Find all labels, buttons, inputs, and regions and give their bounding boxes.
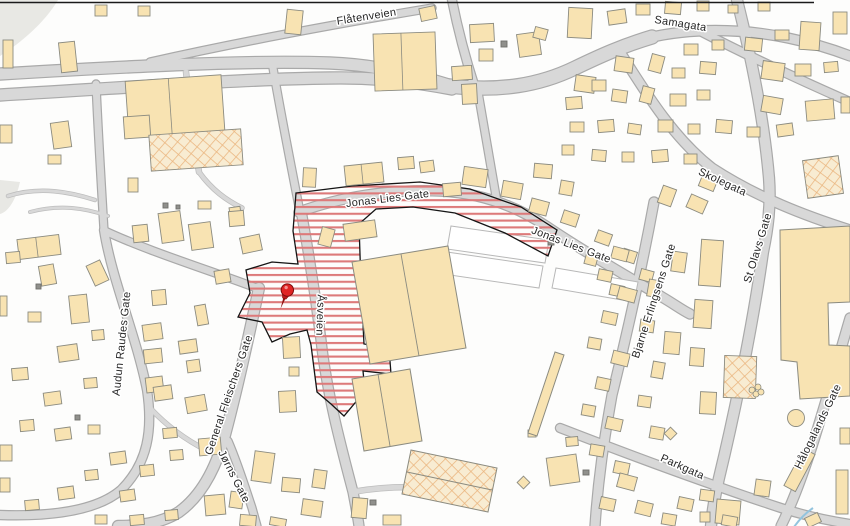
street-label-asveien: Åsveien (313, 294, 327, 336)
street-label-flatenveien: Flåtenveien (336, 6, 397, 27)
terrain-patches (0, 0, 58, 214)
map-canvas[interactable]: Flåtenveien Samagata Jonas Lies Gate Jon… (0, 0, 850, 526)
